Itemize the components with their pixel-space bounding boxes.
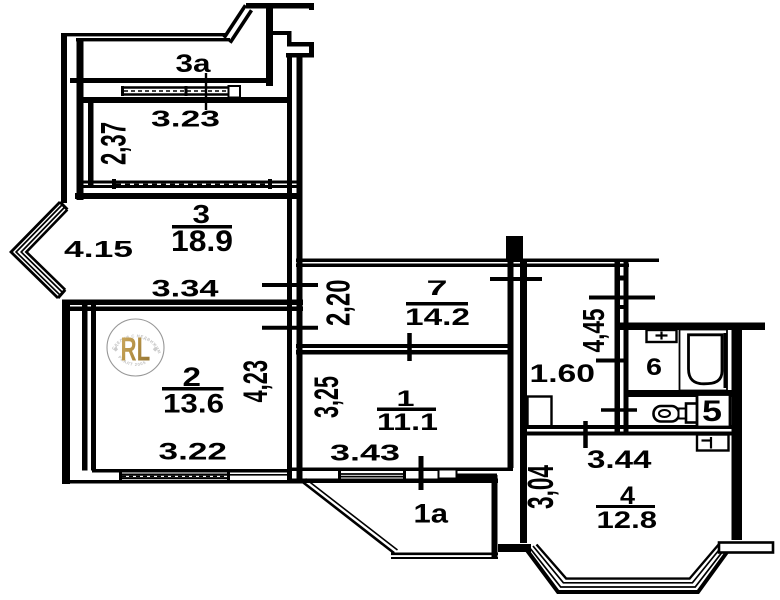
- svg-text:3,25: 3,25: [308, 376, 346, 418]
- svg-text:3.43: 3.43: [330, 439, 400, 465]
- svg-text:7: 7: [427, 276, 448, 300]
- svg-text:14.2: 14.2: [405, 304, 470, 331]
- svg-text:4.15: 4.15: [64, 236, 133, 262]
- svg-text:1.60: 1.60: [530, 360, 596, 388]
- svg-text:RL: RL: [121, 331, 151, 367]
- svg-text:4,45: 4,45: [577, 308, 611, 352]
- svg-text:3.22: 3.22: [159, 439, 228, 466]
- svg-text:1: 1: [397, 386, 415, 411]
- svg-text:5: 5: [702, 395, 722, 428]
- svg-text:3.23: 3.23: [151, 106, 220, 132]
- svg-text:3.44: 3.44: [587, 446, 652, 474]
- svg-text:2,37: 2,37: [95, 122, 134, 165]
- svg-text:18.9: 18.9: [171, 225, 233, 258]
- svg-text:2,20: 2,20: [321, 280, 358, 327]
- svg-text:11.1: 11.1: [377, 409, 438, 436]
- svg-text:13.6: 13.6: [163, 388, 224, 418]
- svg-text:4,23: 4,23: [237, 360, 275, 403]
- svg-text:3.34: 3.34: [152, 276, 220, 303]
- svg-text:12.8: 12.8: [597, 507, 658, 534]
- svg-text:1a: 1a: [414, 499, 449, 529]
- svg-text:3,04: 3,04: [520, 465, 561, 509]
- svg-text:6: 6: [646, 354, 662, 381]
- svg-text:3a: 3a: [176, 50, 212, 78]
